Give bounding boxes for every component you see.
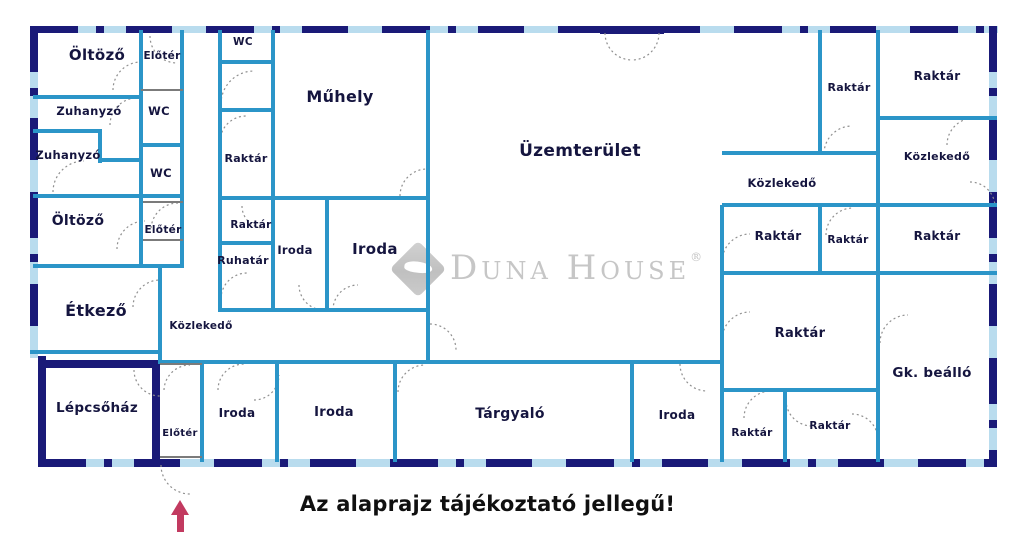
room-label-wc-3: WC	[163, 37, 323, 48]
room-label-raktar-m3: Raktár	[857, 230, 1017, 243]
interior-wall	[160, 363, 202, 365]
interior-wall	[141, 89, 183, 91]
interior-wall	[30, 350, 162, 354]
interior-wall	[141, 143, 184, 147]
room-label-zuhanyzo-2: Zuhanyzó	[0, 149, 148, 161]
interior-wall	[158, 360, 724, 364]
room-label-kozlekedo-1: Közlekedő	[121, 321, 281, 332]
interior-wall	[160, 456, 202, 458]
interior-wall	[722, 203, 997, 207]
room-label-raktar-c1: Raktár	[166, 153, 326, 165]
interior-wall	[33, 129, 102, 133]
room-label-kozlekedo-2: Közlekedő	[857, 151, 1017, 163]
room-label-iroda-b2: Iroda	[254, 406, 414, 420]
interior-wall	[33, 95, 141, 99]
interior-wall	[33, 264, 184, 268]
interior-wall	[143, 239, 183, 241]
interior-wall	[220, 196, 430, 200]
room-label-wc-2: WC	[81, 167, 241, 179]
room-label-raktar-t2: Raktár	[857, 70, 1017, 83]
room-label-targyalo: Tárgyaló	[430, 407, 590, 422]
interior-wall	[143, 201, 183, 203]
entrance-arrow-stem	[177, 515, 184, 532]
room-label-muhely: Műhely	[260, 89, 420, 106]
room-label-wc-1: WC	[79, 105, 239, 117]
room-label-gk-beallo: Gk. beálló	[852, 366, 1012, 380]
room-label-kozlekedo-3: Közlekedő	[702, 177, 862, 189]
room-label-iroda-m2: Iroda	[295, 242, 455, 258]
room-label-raktar-c2: Raktár	[171, 220, 331, 231]
interior-wall	[218, 308, 430, 312]
interior-wall	[722, 271, 997, 275]
room-label-raktar-t1: Raktár	[769, 82, 929, 94]
interior-wall	[722, 388, 880, 392]
room-label-etkezo: Étkező	[16, 303, 176, 320]
room-label-iroda-b3: Iroda	[597, 409, 757, 422]
disclaimer-caption: Az alaprajz tájékoztató jellegű!	[0, 492, 975, 516]
room-label-eloter-1: Előtér	[82, 51, 242, 62]
room-label-raktar-b2: Raktár	[750, 421, 910, 432]
room-label-uzemterulet: Üzemterület	[500, 143, 660, 161]
interior-wall	[878, 116, 997, 120]
room-label-raktar-big: Raktár	[720, 327, 880, 341]
room-label-lepcsohaz: Lépcsőház	[17, 401, 177, 415]
registered-mark: ®	[690, 250, 702, 264]
floorplan-canvas: Duna House® Az alaprajz tájékoztató jell…	[0, 0, 1024, 551]
watermark-text: Duna House	[450, 248, 690, 288]
interior-wall	[33, 194, 184, 198]
room-label-eloter-3: Előtér	[100, 429, 260, 440]
interior-wall	[271, 30, 275, 312]
